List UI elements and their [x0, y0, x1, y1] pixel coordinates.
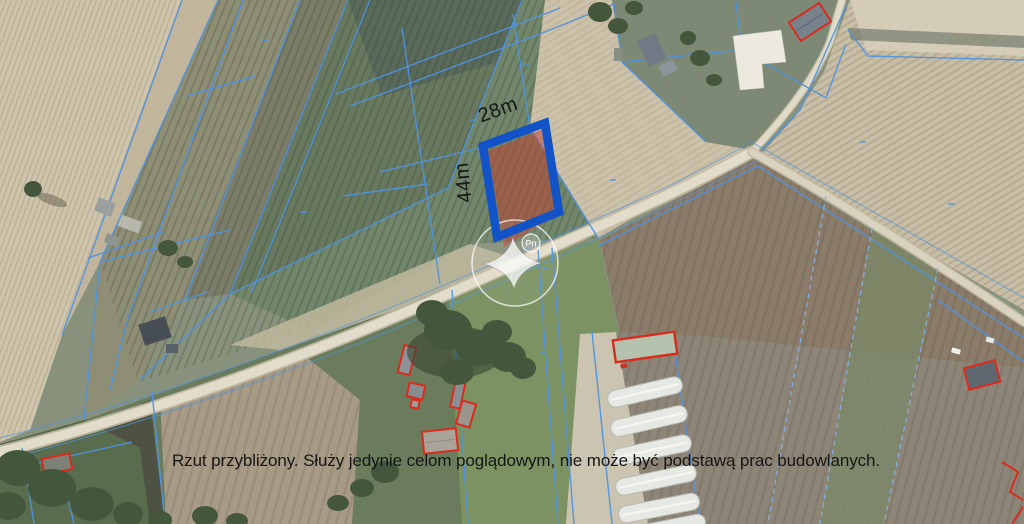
tree — [24, 181, 42, 197]
tree — [588, 2, 612, 22]
tree — [440, 359, 474, 385]
tree — [177, 256, 193, 268]
north-badge-label: Pn — [525, 239, 536, 249]
tree — [327, 495, 349, 511]
tree — [608, 18, 628, 34]
tree — [158, 240, 178, 256]
tree — [680, 31, 696, 45]
shed — [614, 48, 623, 61]
tree — [350, 479, 374, 497]
aerial-imagery: Pn — [0, 0, 1024, 524]
tree — [510, 357, 536, 379]
map-disclaimer: Rzut przybliżony. Służy jedynie celom po… — [172, 451, 880, 471]
tree — [625, 1, 643, 15]
map-view: Pn 28m 44m Rzut przybliżony. Służy jedyn… — [0, 0, 1024, 524]
building-red-outline — [407, 382, 426, 399]
tree — [482, 320, 512, 344]
tree — [28, 469, 76, 507]
house-annex — [166, 344, 178, 353]
field-topright-light — [850, 0, 1024, 56]
tree — [706, 74, 722, 86]
tree — [416, 300, 448, 326]
tree — [690, 50, 710, 66]
tree — [70, 487, 114, 521]
dimension-label-height: 44m — [451, 161, 478, 204]
building-red-outline — [410, 399, 419, 408]
